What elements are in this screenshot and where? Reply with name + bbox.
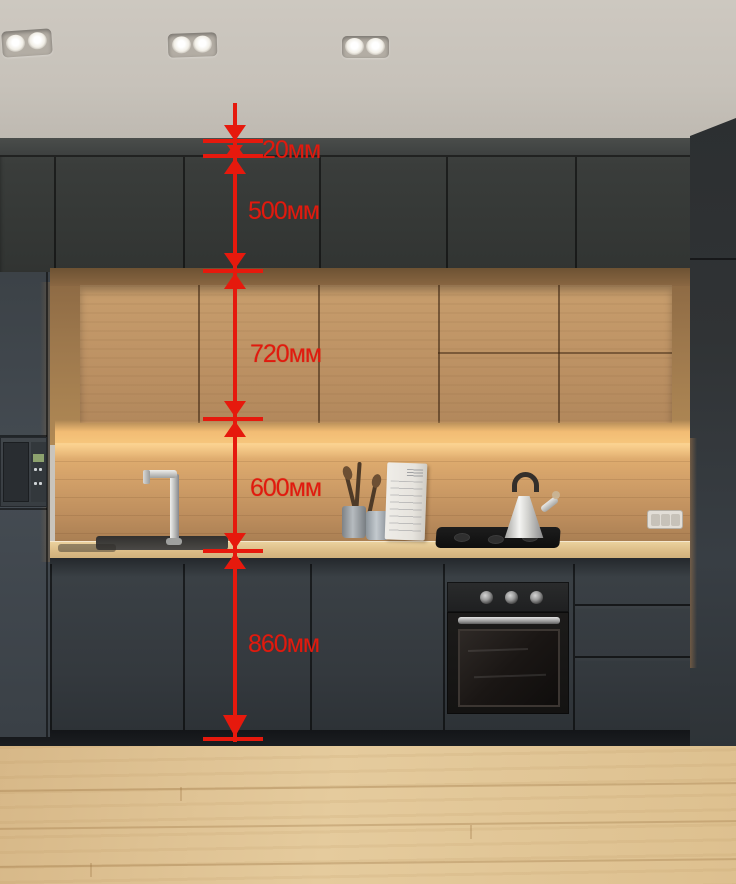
faucet-tip xyxy=(143,470,150,484)
wood-reflection xyxy=(40,282,50,562)
arrow-down-icon xyxy=(224,253,246,269)
floor-plank-joint xyxy=(470,825,472,839)
wood-wall-cabinet-doors xyxy=(80,285,672,423)
drawer-seam xyxy=(575,656,698,658)
dimension-label-20mm: 20мм xyxy=(262,136,320,165)
wood-floor xyxy=(0,746,736,884)
right-corner-panel xyxy=(690,118,736,748)
microwave-display xyxy=(33,454,44,462)
arrow-down-icon xyxy=(224,533,246,549)
ceiling xyxy=(0,0,736,140)
cabinet-seam xyxy=(0,508,47,510)
notepad-scribble xyxy=(407,469,423,478)
cabinet-top-filler xyxy=(0,138,736,157)
faucet xyxy=(170,474,179,542)
niche-top-shadow xyxy=(50,268,700,286)
built-in-microwave xyxy=(0,437,47,507)
outlet-slot xyxy=(651,514,660,526)
outlet-slot xyxy=(661,514,670,526)
oven-knob xyxy=(530,591,543,604)
floor-plank-line xyxy=(0,858,736,868)
floor-plank-joint xyxy=(180,787,182,801)
floor-plank-joint xyxy=(90,863,92,877)
dimension-label-500mm: 500мм xyxy=(248,197,319,226)
arrow-up-icon xyxy=(224,421,246,437)
lamp-icon xyxy=(345,38,364,55)
door-seam xyxy=(558,285,560,423)
lamp-icon xyxy=(27,32,47,50)
glass-reflection xyxy=(474,674,546,679)
arrow-down-icon xyxy=(224,125,246,141)
arrow-up-icon xyxy=(224,158,246,174)
cabinet-seam xyxy=(183,564,185,732)
arrow-down-icon xyxy=(224,401,246,417)
dimension-tick xyxy=(203,737,263,741)
kettle-handle xyxy=(512,472,539,492)
kitchen-dimension-diagram: 20мм 500мм 720мм 600мм 860мм xyxy=(0,0,736,884)
microwave-button xyxy=(34,482,37,485)
power-outlet xyxy=(647,510,683,529)
cabinet-seam xyxy=(54,157,56,272)
drawer-seam xyxy=(575,604,698,606)
arrow-down-icon xyxy=(227,145,243,156)
wood-reflection xyxy=(690,438,697,668)
arrow-up-icon xyxy=(224,553,246,569)
kettle-whistle xyxy=(552,491,560,499)
lamp-icon xyxy=(5,34,25,52)
oven-door xyxy=(447,612,569,714)
burner-icon xyxy=(454,533,471,542)
microwave-button xyxy=(34,468,37,471)
utensil-crock xyxy=(342,506,366,538)
oven-control-panel xyxy=(447,582,569,612)
dimension-label-720mm: 720мм xyxy=(250,340,321,369)
burner-icon xyxy=(488,535,505,544)
oven-knob xyxy=(480,591,493,604)
ceiling-spotlight xyxy=(1,28,53,57)
microwave-button xyxy=(39,482,42,485)
arrow-down-icon xyxy=(223,715,247,737)
ceiling-spotlight xyxy=(168,32,218,58)
cabinet-seam xyxy=(443,564,445,732)
counter-shadow xyxy=(58,544,116,552)
microwave-window xyxy=(3,442,29,502)
lamp-icon xyxy=(366,38,385,55)
cabinet-seam xyxy=(575,157,577,272)
ceiling-spotlight xyxy=(342,36,389,58)
microwave-control-panel xyxy=(31,442,46,502)
base-cabinets xyxy=(0,558,736,748)
cabinet-seam xyxy=(573,564,575,732)
notepad-lines xyxy=(389,480,423,533)
microwave-button xyxy=(39,468,42,471)
oven-window xyxy=(458,629,560,707)
dimension-label-600mm: 600мм xyxy=(250,474,321,503)
floor-plank-line xyxy=(0,820,736,830)
outlet-slot xyxy=(671,514,680,526)
cabinet-seam xyxy=(183,157,185,272)
oven-handle xyxy=(458,617,560,624)
cabinet-seam xyxy=(690,258,736,260)
cabinet-seam xyxy=(50,564,52,732)
door-seam xyxy=(438,285,440,423)
notepad xyxy=(385,462,428,540)
arrow-up-icon xyxy=(224,273,246,289)
floor-plank-line xyxy=(0,782,736,792)
glass-reflection xyxy=(468,648,528,652)
lamp-icon xyxy=(172,36,192,54)
door-seam xyxy=(438,352,672,354)
cabinet-seam xyxy=(446,157,448,272)
dimension-label-860mm: 860мм xyxy=(248,630,319,659)
door-seam xyxy=(198,285,200,423)
cabinet-seam xyxy=(319,157,321,272)
led-glow xyxy=(55,443,690,459)
upper-dark-cabinets xyxy=(0,138,736,272)
lamp-icon xyxy=(193,35,213,53)
oven-knob xyxy=(505,591,518,604)
faucet-base xyxy=(166,538,182,545)
